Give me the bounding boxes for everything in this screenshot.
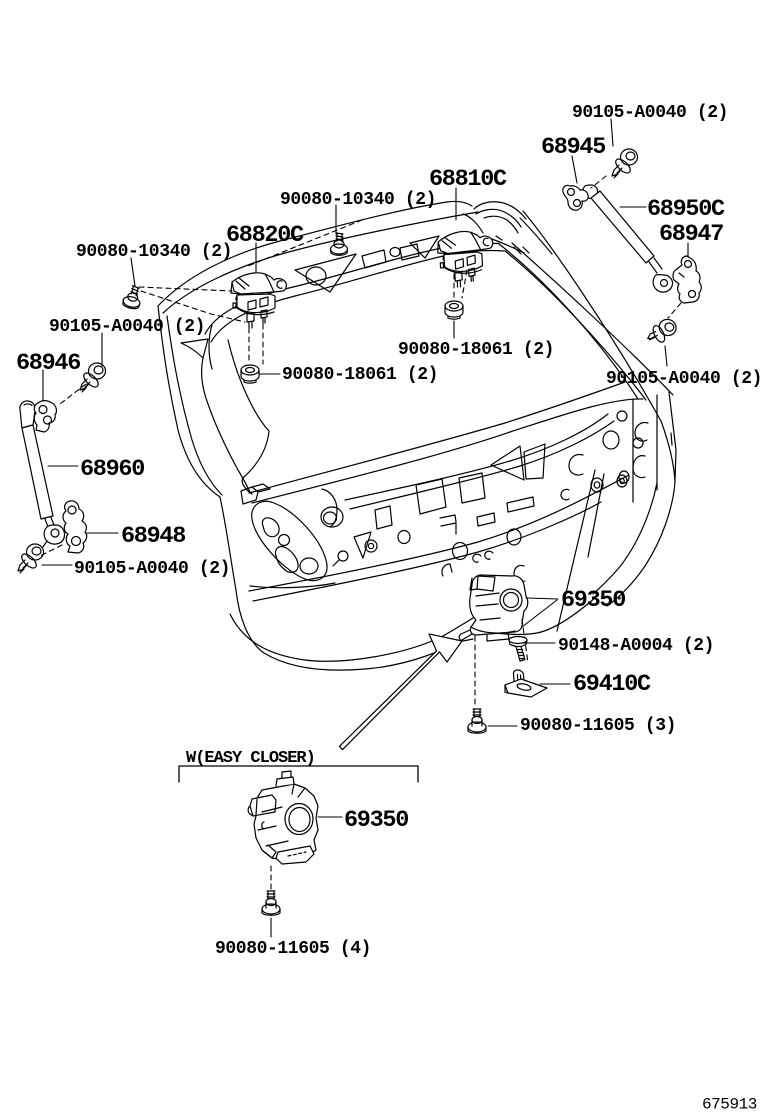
svg-text:90105-A0040 (2): 90105-A0040 (2) — [606, 369, 760, 389]
svg-text:90080-11605 (4): 90080-11605 (4) — [215, 939, 371, 959]
svg-text:68945: 68945 — [541, 134, 605, 161]
svg-text:675913: 675913 — [702, 1096, 757, 1112]
svg-text:90105-A0040 (2): 90105-A0040 (2) — [74, 559, 230, 579]
svg-text:69410C: 69410C — [573, 671, 651, 698]
svg-text:69350: 69350 — [344, 807, 408, 834]
svg-text:68948: 68948 — [121, 523, 185, 550]
svg-text:68947: 68947 — [659, 221, 723, 248]
svg-text:90105-A0040 (2): 90105-A0040 (2) — [572, 103, 728, 123]
svg-text:90105-A0040 (2): 90105-A0040 (2) — [49, 317, 205, 337]
svg-text:90080-10340 (2): 90080-10340 (2) — [280, 190, 436, 210]
svg-text:69350: 69350 — [561, 587, 625, 614]
svg-text:68960: 68960 — [80, 456, 144, 483]
svg-text:90148-A0004 (2): 90148-A0004 (2) — [558, 636, 714, 656]
svg-text:90080-18061 (2): 90080-18061 (2) — [398, 340, 554, 360]
svg-text:90080-10340 (2): 90080-10340 (2) — [76, 242, 232, 262]
svg-text:68820C: 68820C — [226, 222, 304, 249]
svg-text:68810C: 68810C — [429, 166, 507, 193]
svg-text:90080-18061 (2): 90080-18061 (2) — [282, 365, 438, 385]
svg-text:90080-11605 (3): 90080-11605 (3) — [520, 716, 676, 736]
svg-text:68946: 68946 — [16, 350, 80, 377]
svg-text:68950C: 68950C — [647, 196, 725, 223]
svg-text:W(EASY CLOSER): W(EASY CLOSER) — [186, 749, 315, 768]
